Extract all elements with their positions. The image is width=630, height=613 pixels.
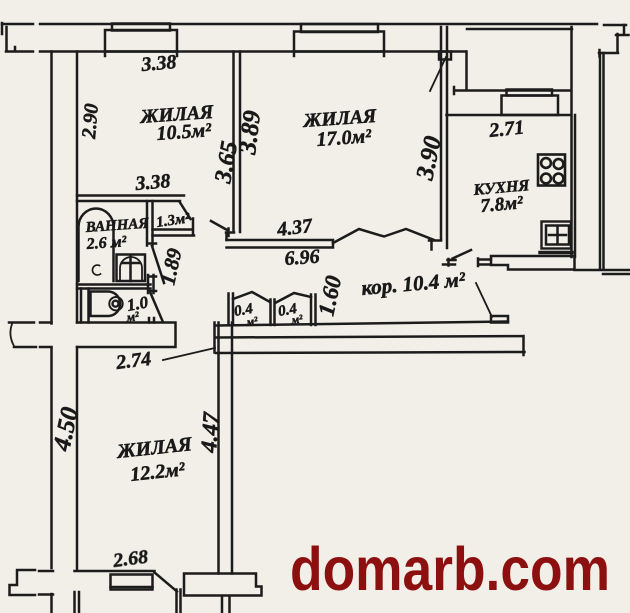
svg-text:17.0м²: 17.0м²	[316, 125, 373, 151]
svg-text:4.47: 4.47	[196, 410, 224, 454]
svg-text:4.37: 4.37	[275, 215, 314, 241]
svg-text:7.8м²: 7.8м²	[480, 192, 525, 217]
svg-text:3.38: 3.38	[134, 170, 172, 195]
svg-text:3.38: 3.38	[140, 51, 178, 76]
svg-text:2.68: 2.68	[111, 546, 149, 572]
svg-text:10.5м²: 10.5м²	[156, 119, 213, 145]
svg-text:2.74: 2.74	[114, 348, 152, 374]
svg-text:domarb.com: domarb.com	[290, 535, 610, 603]
svg-text:6.96: 6.96	[284, 246, 320, 270]
svg-text:2.90: 2.90	[78, 103, 103, 141]
svg-text:2.71: 2.71	[487, 116, 525, 142]
svg-text:2.6 м²: 2.6 м²	[85, 233, 128, 253]
